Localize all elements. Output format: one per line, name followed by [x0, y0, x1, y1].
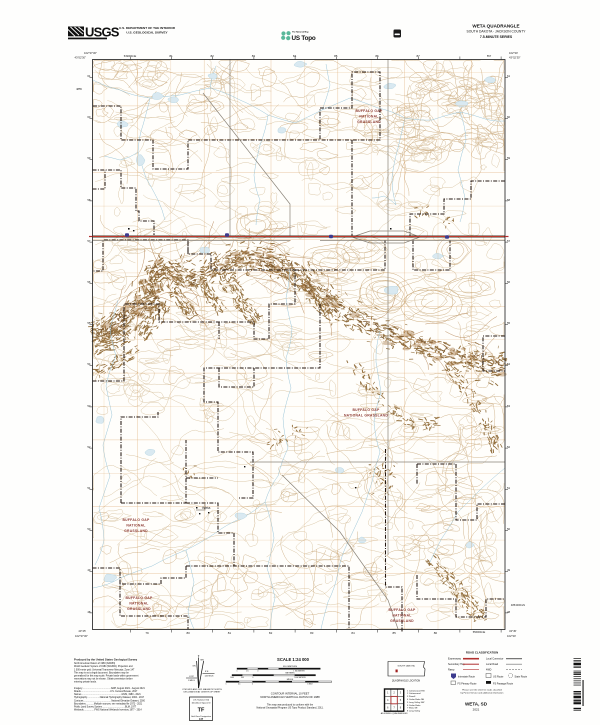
svg-text:85: 85	[393, 631, 397, 635]
svg-text:US Topo: US Topo	[292, 35, 316, 42]
svg-text:BUFFALO GAP: BUFFALO GAP	[388, 608, 416, 612]
svg-text:557: 557	[487, 54, 492, 58]
svg-text:142 MILS: 142 MILS	[205, 676, 215, 678]
svg-text:Contours......................: Contours................................…	[74, 699, 146, 702]
svg-text:57: 57	[87, 239, 91, 243]
svg-text:102°30': 102°30'	[509, 51, 519, 55]
svg-text:NATIONAL: NATIONAL	[392, 614, 411, 618]
svg-text:79: 79	[145, 631, 149, 635]
svg-text:DECLINATION AT CENTER OF SHEET: DECLINATION AT CENTER OF SHEET	[184, 691, 222, 694]
svg-text:53: 53	[507, 404, 511, 408]
svg-text:UTM GRID AND 2021 MAGNETIC NOR: UTM GRID AND 2021 MAGNETIC NORTH	[182, 688, 222, 691]
svg-text:GRASSLAND: GRASSLAND	[390, 619, 414, 623]
svg-text:Roads.........................: Roads...................................…	[74, 690, 138, 693]
svg-text:reservations may not be shown.: reservations may not be shown. Obtain pe…	[74, 678, 133, 681]
svg-text:82: 82	[211, 54, 215, 58]
svg-text:0.5: 0.5	[238, 684, 240, 686]
svg-text:48: 48	[87, 610, 91, 614]
svg-text:4855: 4855	[76, 87, 82, 91]
svg-text:World Geodetic System of 1984: World Geodetic System of 1984 (WGS84). P…	[74, 665, 133, 668]
svg-text:GRASSLAND: GRASSLAND	[127, 607, 151, 611]
svg-text:53: 53	[87, 404, 91, 408]
svg-text:58: 58	[87, 198, 91, 202]
svg-text:North American Datum of 1983 (: North American Datum of 1983 (NAD83)	[74, 662, 115, 665]
svg-text:7.5-MINUTE SERIES: 7.5-MINUTE SERIES	[480, 35, 513, 39]
svg-text:0°28': 0°28'	[189, 676, 194, 678]
svg-text:7 Weta SE: 7 Weta SE	[407, 707, 418, 710]
svg-text:86: 86	[375, 54, 379, 58]
svg-text:50: 50	[87, 527, 91, 531]
svg-text:556000mE: 556000mE	[473, 630, 486, 634]
svg-text:US Route: US Route	[493, 676, 504, 679]
svg-text:GRASSLAND: GRASSLAND	[124, 529, 148, 533]
svg-text:NORTH AMERICAN VERTICAL DATUM: NORTH AMERICAN VERTICAL DATUM OF 1988	[260, 695, 320, 699]
svg-text:U.S. National Grid: U.S. National Grid	[193, 699, 209, 702]
svg-text:83: 83	[310, 631, 314, 635]
svg-text:State Route: State Route	[515, 676, 528, 679]
svg-text:BUFFALO GAP: BUFFALO GAP	[355, 109, 383, 113]
svg-text:8 MILS: 8 MILS	[188, 680, 195, 682]
svg-text:1: 1	[237, 671, 238, 673]
svg-text:NATIONAL: NATIONAL	[126, 524, 145, 528]
svg-text:USGS: USGS	[85, 25, 120, 40]
svg-text:56: 56	[507, 280, 511, 284]
svg-text:102°37'30": 102°37'30"	[84, 51, 97, 55]
svg-text:MILES: MILES	[287, 679, 294, 681]
svg-text:Weta: Weta	[202, 506, 210, 510]
svg-text:generalized for this map scale: generalized for this map scale. Private …	[74, 675, 139, 678]
svg-text:0: 0	[252, 684, 253, 686]
svg-text:85: 85	[334, 54, 338, 58]
svg-text:81: 81	[169, 54, 173, 58]
svg-text:SOUTH DAKOTA - JACKSON COUNTY: SOUTH DAKOTA - JACKSON COUNTY	[467, 30, 527, 34]
svg-text:BUFFALO GAP: BUFFALO GAP	[352, 408, 380, 412]
svg-text:FS Passage Route: FS Passage Route	[493, 683, 514, 686]
svg-text:TF: TF	[198, 708, 205, 714]
svg-text:8 Long Valley: 8 Long Valley	[407, 711, 421, 713]
svg-text:Produced by the United States: Produced by the United States Geological…	[74, 658, 138, 662]
svg-text:entering private lands.: entering private lands.	[74, 681, 97, 684]
svg-text:43°45': 43°45'	[509, 629, 517, 633]
svg-text:0: 0	[257, 671, 258, 673]
svg-text:1 MILE: 1 MILE	[307, 684, 313, 686]
svg-text:WETA, SD: WETA, SD	[465, 702, 488, 707]
svg-text:1: 1	[226, 684, 227, 686]
svg-text:1 Cottonwood SW: 1 Cottonwood SW	[407, 689, 426, 692]
svg-text:54: 54	[87, 362, 91, 366]
svg-text:4WD: 4WD	[486, 669, 492, 672]
svg-text:2021: 2021	[473, 708, 480, 712]
svg-text:NATIONAL: NATIONAL	[129, 602, 148, 606]
svg-text:ADJOINING QUADRANGLES: ADJOINING QUADRANGLES	[381, 712, 408, 715]
svg-text:Local Connector: Local Connector	[486, 658, 504, 661]
svg-text:Hydrography...................: Hydrography....................National …	[74, 696, 145, 699]
svg-text:Please see title sheet for roa: Please see title sheet for roads classif…	[462, 689, 502, 692]
svg-text:60: 60	[507, 115, 511, 119]
svg-text:GN: GN	[192, 666, 196, 668]
svg-text:61: 61	[507, 74, 511, 78]
svg-text:43°45': 43°45'	[78, 629, 86, 633]
svg-text:86: 86	[434, 631, 438, 635]
svg-text:4 Cedar Butte NE: 4 Cedar Butte NE	[407, 698, 425, 701]
svg-text:0.5: 0.5	[246, 671, 248, 673]
svg-text:SCALE 1:24 000: SCALE 1:24 000	[277, 657, 310, 662]
svg-text:61: 61	[87, 74, 91, 78]
svg-text:81: 81	[228, 631, 232, 635]
svg-text:52: 52	[507, 445, 511, 449]
svg-text:100,000-m Square ID: 100,000-m Square ID	[191, 703, 211, 705]
svg-text:KILOMETERS: KILOMETERS	[283, 666, 298, 668]
svg-text:Wetlands.................FWS N: Wetlands.................FWS National We…	[74, 709, 142, 712]
svg-text:NATIONAL: NATIONAL	[359, 115, 378, 119]
svg-text:50: 50	[507, 527, 511, 531]
svg-text:QUADRANGLE LOCATION: QUADRANGLE LOCATION	[392, 680, 421, 683]
svg-text:by Forest Service and addition: by Forest Service and additional informa…	[461, 691, 504, 694]
svg-text:84: 84	[293, 54, 297, 58]
svg-text:3 Powell: 3 Powell	[407, 696, 416, 698]
svg-text:Local Road: Local Road	[486, 663, 499, 666]
svg-text:Secondary Hwy: Secondary Hwy	[448, 663, 466, 666]
svg-text:SOUTH DAKOTA: SOUTH DAKOTA	[397, 665, 415, 668]
svg-text:58: 58	[507, 198, 511, 202]
svg-text:4854000mN: 4854000mN	[511, 603, 525, 607]
svg-text:2 Cottonwood: 2 Cottonwood	[407, 692, 421, 695]
svg-text:5 Long Valley NW: 5 Long Valley NW	[407, 702, 425, 704]
svg-text:500: 500	[241, 677, 244, 679]
svg-text:National Geospatial Program US: National Geospatial Program US Topo Prod…	[257, 707, 324, 710]
svg-text:59: 59	[507, 156, 511, 160]
svg-text:Ramp: Ramp	[448, 669, 455, 672]
svg-text:43°52'30": 43°52'30"	[74, 56, 86, 60]
svg-text:49: 49	[507, 568, 511, 572]
svg-text:WETA QUADRANGLE: WETA QUADRANGLE	[472, 24, 519, 29]
svg-text:1 KILOMETER: 1 KILOMETER	[293, 671, 305, 673]
svg-text:87: 87	[417, 54, 421, 58]
svg-text:80: 80	[187, 631, 191, 635]
svg-text:14T: 14T	[199, 718, 204, 721]
svg-text:BUFFALO GAP: BUFFALO GAP	[122, 518, 150, 522]
svg-text:56: 56	[87, 280, 91, 284]
svg-text:82: 82	[269, 631, 273, 635]
svg-text:Names.........................: Names...................................…	[74, 694, 141, 696]
svg-text:GRASSLAND: GRASSLAND	[357, 120, 381, 124]
svg-text:BUFFALO GAP: BUFFALO GAP	[125, 596, 153, 600]
svg-text:83: 83	[252, 54, 256, 58]
svg-text:6 Cedar Butte: 6 Cedar Butte	[407, 704, 421, 707]
svg-text:U.S. GEOLOGICAL SURVEY: U.S. GEOLOGICAL SURVEY	[126, 30, 168, 34]
svg-text:1 000-meter grid: Universal Tr: 1 000-meter grid: Universal Transverse M…	[74, 668, 135, 671]
svg-text:59: 59	[87, 156, 91, 160]
svg-text:84: 84	[351, 631, 355, 635]
svg-text:The National Map: The National Map	[292, 30, 309, 33]
svg-text:FS Primary Route: FS Primary Route	[458, 683, 478, 686]
svg-text:1000: 1000	[230, 677, 234, 679]
svg-text:CONTOUR INTERVAL 10 FEET: CONTOUR INTERVAL 10 FEET	[271, 692, 310, 696]
svg-text:48: 48	[507, 610, 511, 614]
svg-text:Public Land Survey System.....: Public Land Survey System...............…	[74, 706, 137, 709]
svg-text:549000mE: 549000mE	[124, 54, 137, 58]
svg-text:Imagery.......................: Imagery.................................…	[74, 687, 145, 690]
svg-text:Boundaries.............Multipl: Boundaries.............Multiple sources;…	[74, 702, 143, 705]
svg-text:Expressway: Expressway	[448, 658, 462, 661]
svg-text:0: 0	[252, 677, 253, 679]
svg-text:43°52'30": 43°52'30"	[509, 56, 521, 60]
svg-text:102°37'30": 102°37'30"	[75, 634, 88, 638]
svg-text:51: 51	[507, 486, 511, 490]
svg-text:52: 52	[87, 445, 91, 449]
svg-text:Interstate Route: Interstate Route	[458, 676, 476, 679]
svg-text:MN: MN	[201, 660, 205, 662]
svg-text:ROAD CLASSIFICATION: ROAD CLASSIFICATION	[466, 651, 498, 655]
svg-text:NATIONAL GRASSLAND: NATIONAL GRASSLAND	[344, 414, 388, 418]
svg-text:60: 60	[87, 115, 91, 119]
svg-text:54: 54	[507, 362, 511, 366]
svg-text:102°30': 102°30'	[507, 634, 517, 638]
svg-text:This map is not a legal docume: This map is not a legal document. Bounda…	[74, 671, 129, 674]
svg-text:49: 49	[87, 568, 91, 572]
svg-text:51: 51	[87, 486, 91, 490]
svg-text:55: 55	[87, 321, 91, 325]
svg-text:57: 57	[507, 239, 511, 243]
svg-text:55: 55	[507, 321, 511, 325]
svg-text:1000 METERS: 1000 METERS	[294, 677, 306, 679]
